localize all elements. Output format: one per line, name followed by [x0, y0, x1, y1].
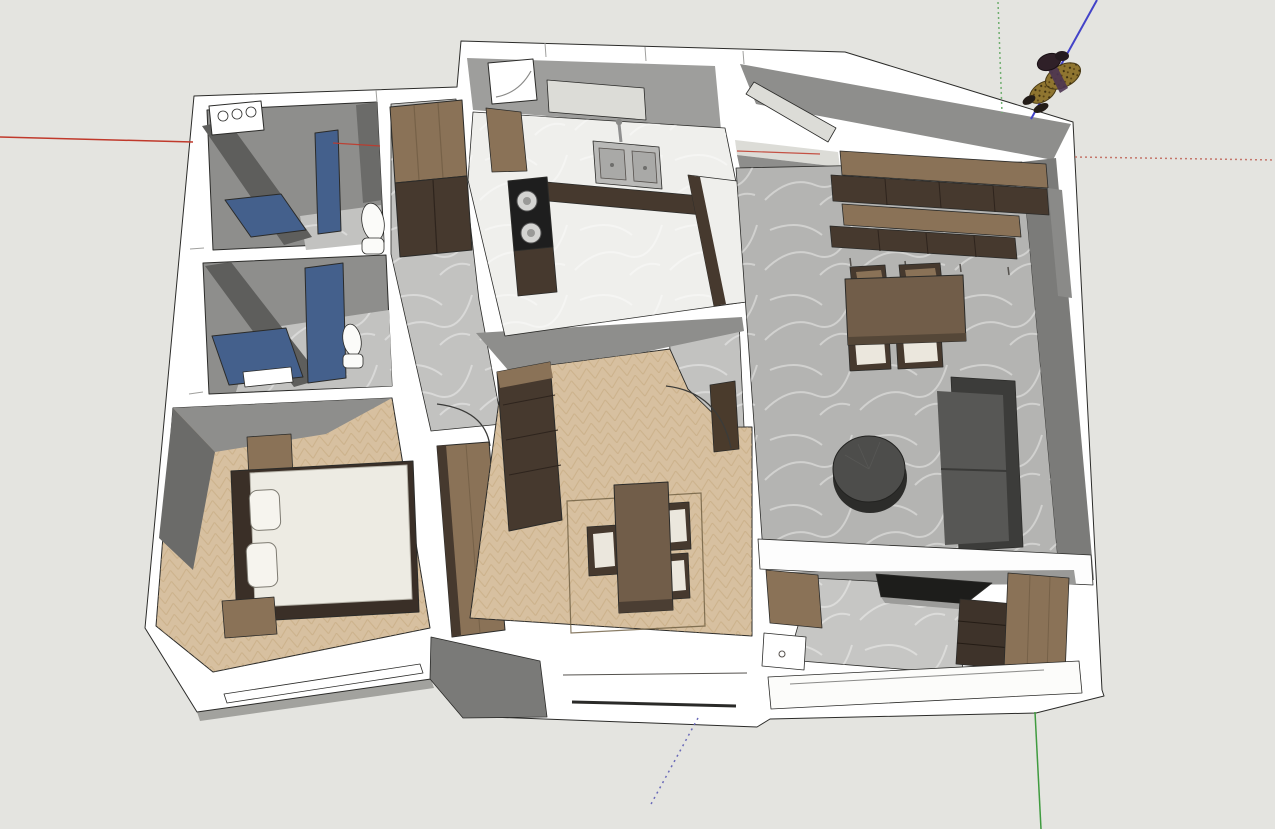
figure-hair: [1055, 51, 1069, 61]
sofa[interactable]: [937, 377, 1023, 551]
chair[interactable]: [587, 525, 619, 576]
upper-cabinet[interactable]: [486, 108, 527, 172]
room-utility-wall[interactable]: Lower utility / TV wall (bottom-right): [762, 570, 1082, 709]
door-panel[interactable]: [710, 381, 739, 452]
wardrobe[interactable]: [497, 362, 562, 531]
sink-box[interactable]: [762, 633, 806, 670]
shower-glass-panel[interactable]: [305, 263, 346, 383]
cabinet[interactable]: [766, 570, 822, 628]
pillow: [246, 542, 278, 588]
nightstand[interactable]: [222, 597, 277, 638]
washing-machine[interactable]: [209, 101, 264, 135]
room-bathroom-2[interactable]: Bathroom 2 (mid-left): [203, 255, 392, 394]
model-viewport[interactable]: Bathroom / Laundry (top-left) Bathroom 2…: [0, 0, 1275, 829]
table[interactable]: [614, 482, 673, 613]
tall-cabinet[interactable]: [390, 100, 472, 257]
sketchup-canvas[interactable]: Bathroom / Laundry (top-left) Bathroom 2…: [0, 0, 1275, 829]
corner-unit[interactable]: [488, 59, 537, 104]
cabinet[interactable]: [1004, 573, 1069, 675]
shower-glass-panel[interactable]: [315, 130, 341, 234]
pillow: [249, 489, 281, 531]
round-coffee-table[interactable]: [833, 436, 907, 513]
cooktop[interactable]: [508, 177, 553, 251]
room-second[interactable]: Second room (center): [470, 317, 752, 636]
dining-table[interactable]: [845, 275, 966, 345]
room-bathroom-1[interactable]: Bathroom / Laundry (top-left): [202, 101, 387, 254]
base-cabinet-low[interactable]: [514, 247, 557, 296]
